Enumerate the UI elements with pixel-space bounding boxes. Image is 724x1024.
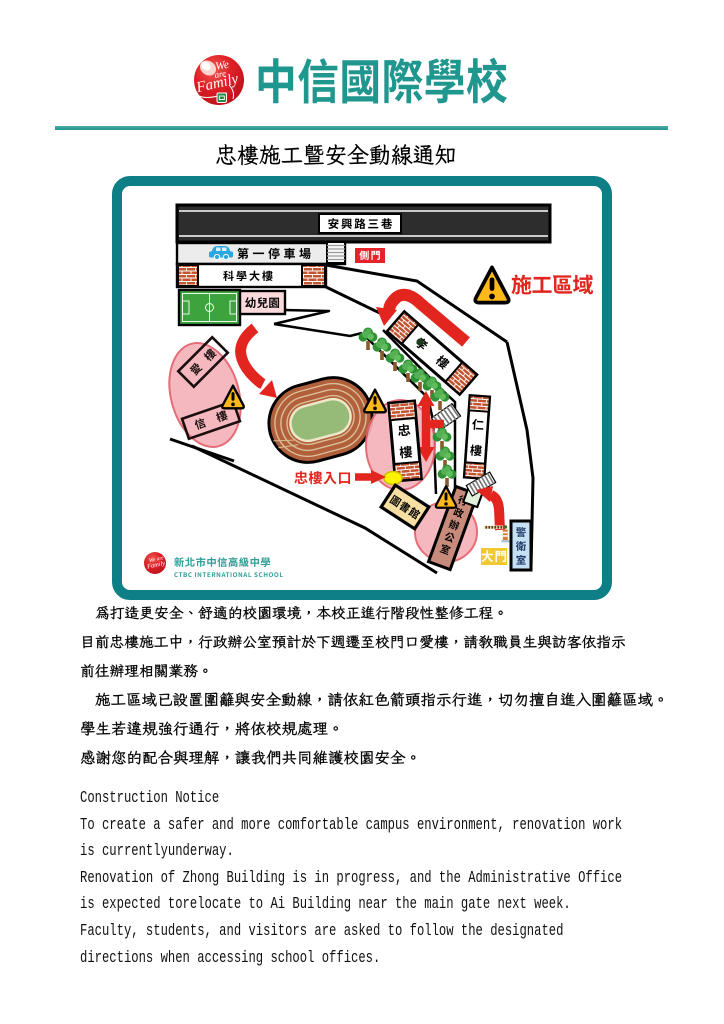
svg-text:忠: 忠 [397,420,412,440]
svg-text:第一停車場: 第一停車場 [237,245,315,262]
svg-text:樓: 樓 [399,441,414,461]
svg-text:新北市中信高級中學: 新北市中信高級中學 [174,554,271,569]
svg-text:施工區域: 施工區域 [511,270,593,300]
svg-text:仁: 仁 [471,416,484,434]
svg-text:科學大樓: 科學大樓 [223,268,275,284]
svg-text:CTBC INTERNATIONAL SCHOOL: CTBC INTERNATIONAL SCHOOL [174,570,284,579]
svg-text:大門: 大門 [481,546,508,565]
svg-text:幼兒園: 幼兒園 [245,295,280,311]
svg-text:側門: 側門 [359,247,382,262]
svg-text:室: 室 [516,553,527,568]
svg-text:安興路三巷: 安興路三巷 [328,216,395,232]
svg-text:忠樓入口: 忠樓入口 [294,468,352,488]
svg-text:樓: 樓 [469,442,482,460]
svg-text:衛: 衛 [516,539,527,554]
svg-text:警: 警 [516,525,527,540]
